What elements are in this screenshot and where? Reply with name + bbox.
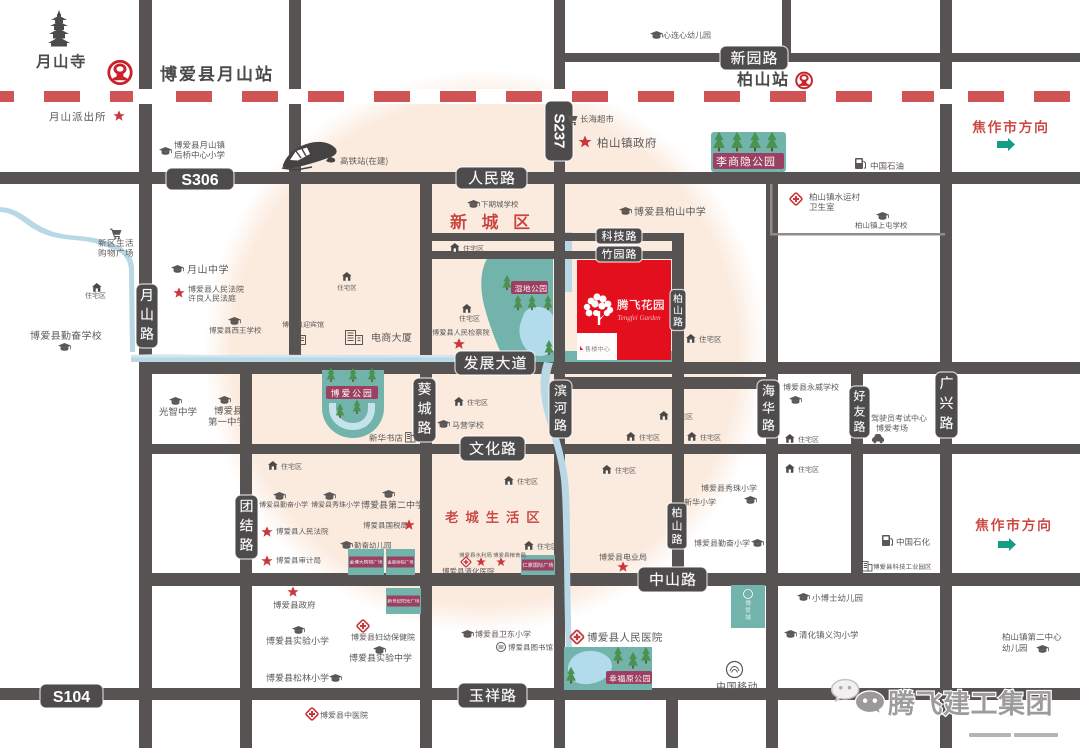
svg-text:S306: S306 <box>181 172 218 189</box>
svg-text:S237: S237 <box>551 113 568 148</box>
svg-text:S104: S104 <box>53 689 90 706</box>
svg-text:Tengfei Garden: Tengfei Garden <box>617 314 661 322</box>
